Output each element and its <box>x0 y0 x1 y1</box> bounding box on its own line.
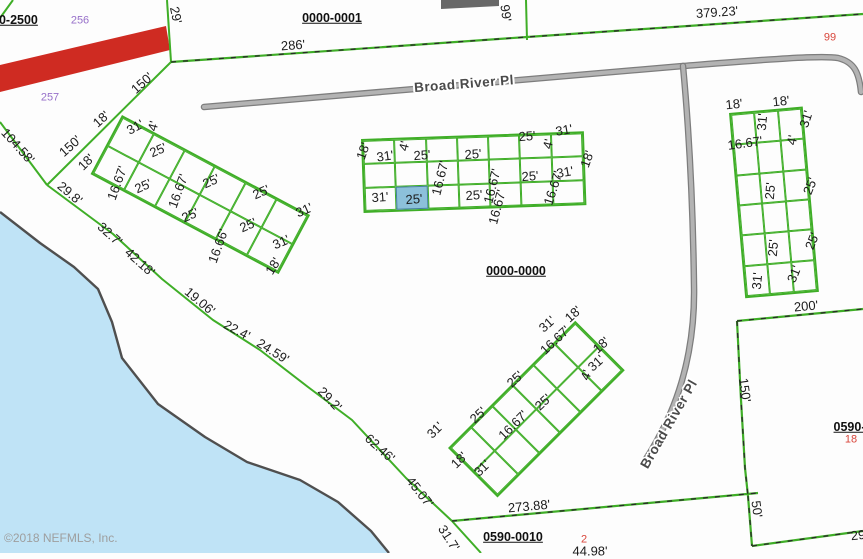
lot-cell[interactable] <box>736 173 762 205</box>
dimension-label: 31' <box>755 113 769 131</box>
lot-cell[interactable] <box>364 163 396 187</box>
lot-number: 256 <box>71 16 89 27</box>
dimension-label: 31' <box>555 122 574 138</box>
dimension-label: 25' <box>413 148 431 162</box>
top-road-stub <box>441 0 499 9</box>
dimension-label: 200' <box>793 298 818 313</box>
dimension-label: 286' <box>280 38 305 53</box>
plat-map[interactable]: 286'379.23'99'29'104.58'150'150'18'29.8'… <box>0 0 863 553</box>
dimension-label: 150' <box>737 377 753 403</box>
lot-number: 18 <box>845 435 857 446</box>
parcel-id-label: 0590-0010 <box>483 531 543 544</box>
dimension-label: 18' <box>772 94 790 109</box>
lot-cell[interactable] <box>786 199 812 231</box>
dimension-label: 50' <box>749 500 764 519</box>
lot-number: 2 <box>581 535 587 546</box>
lot-cell[interactable] <box>762 201 788 233</box>
dimension-label: 29 <box>850 528 863 542</box>
lot-cell[interactable] <box>395 162 427 186</box>
dimension-label: 31' <box>371 190 389 204</box>
dimension-label: 25' <box>405 192 423 206</box>
dimension-label: 379.23' <box>695 4 738 20</box>
dimension-label: 25' <box>763 182 777 200</box>
lot-cell[interactable] <box>488 135 520 159</box>
dimension-label: 31' <box>750 272 764 290</box>
dimension-label: 25' <box>464 147 482 161</box>
dimension-label: 31' <box>376 148 395 163</box>
mls-watermark: ©2018 NEFMLS, Inc. <box>4 531 118 545</box>
dimension-label: 44.98' <box>572 545 607 558</box>
parcel-id-label: 0000-0000 <box>486 265 546 278</box>
dimension-label: 18' <box>725 97 743 112</box>
dimension-label: 99' <box>498 4 513 23</box>
lot-cell[interactable] <box>739 203 765 235</box>
dimension-label: 25' <box>766 239 780 257</box>
lot-number: 99 <box>824 33 836 44</box>
lot-number: 257 <box>41 93 59 104</box>
lot-cell[interactable] <box>742 234 768 266</box>
water-body <box>0 212 389 553</box>
parcel-id-label: 0000-0001 <box>302 12 362 25</box>
parcel-id-label: 0590-0 <box>834 421 863 434</box>
parcel-id-label: 0000-2500 <box>0 14 38 27</box>
dimension-label: 29' <box>168 5 184 24</box>
dimension-label: 273.88' <box>507 498 550 515</box>
dimension-label: 25' <box>521 169 539 183</box>
dimension-label: 25' <box>518 129 536 143</box>
dimension-label: 25' <box>465 188 483 202</box>
